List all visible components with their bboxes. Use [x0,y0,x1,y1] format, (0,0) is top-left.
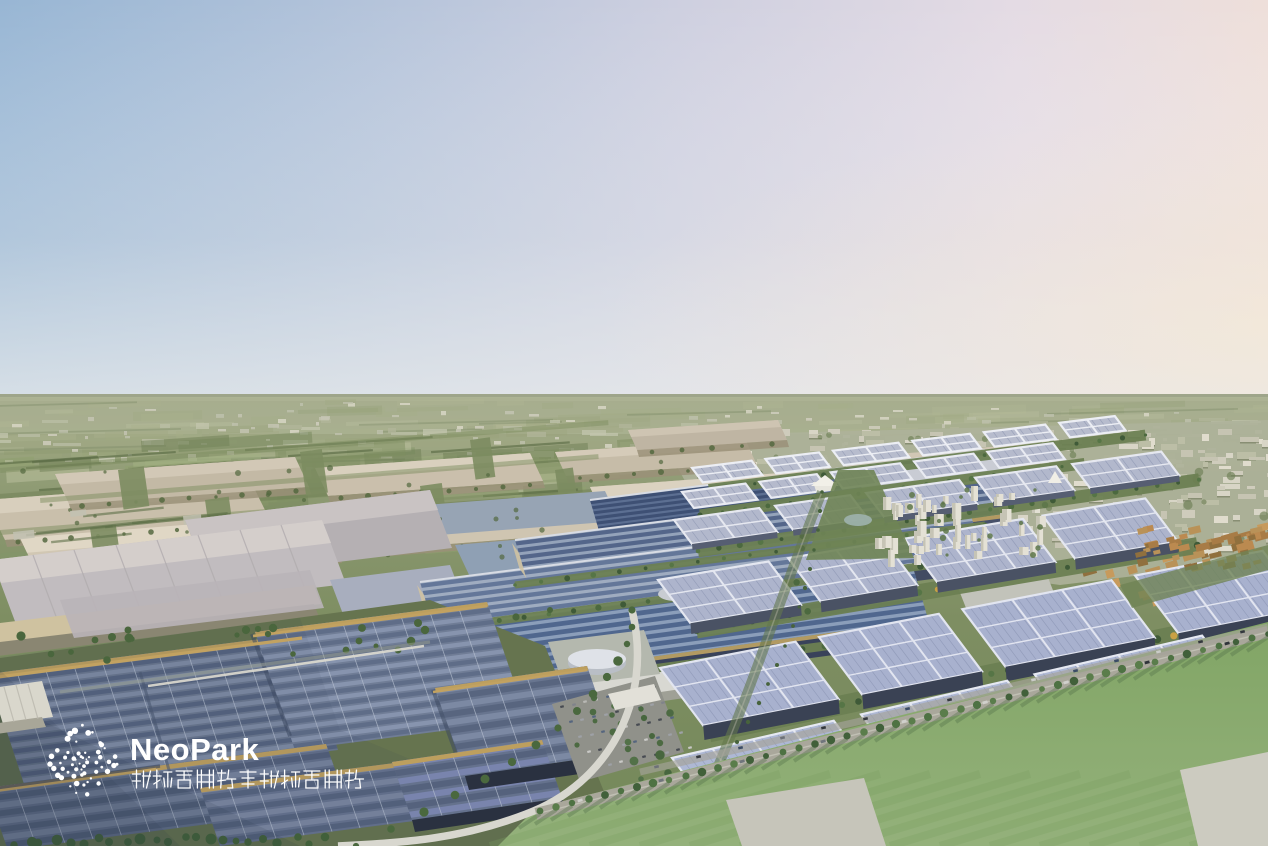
svg-text:NeoPark: NeoPark [130,732,260,767]
